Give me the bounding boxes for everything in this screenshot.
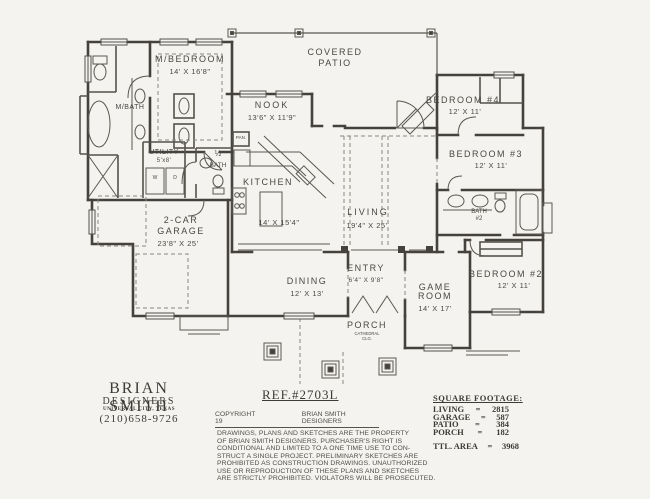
sqft-total-eq: =: [488, 441, 493, 451]
label-bedroom4: BEDROOM #4: [419, 96, 507, 105]
sqft-total-value: 3968: [502, 441, 519, 451]
label-bedroom3: BEDROOM #3: [442, 150, 530, 159]
label-m-bedroom: M/BEDROOM: [140, 55, 240, 64]
dims-entry: 6'4" X 9'8": [336, 277, 396, 284]
label-living: LIVING: [338, 208, 398, 217]
dims-kitchen: 14' X 15'4": [247, 218, 311, 227]
designer-phone: (210)658-9726: [83, 413, 195, 425]
label-washer: W: [149, 176, 161, 181]
sqft-label: PORCH: [433, 427, 464, 437]
dims-bedroom3: 12' X 11': [447, 161, 535, 170]
sqft-total-label: TTL. AREA: [433, 441, 478, 451]
label-game-room-2: ROOM: [405, 292, 465, 301]
label-m-bath: M/BATH: [104, 104, 156, 111]
floor-plan-sheet: M/BEDROOM 14' X 16'8" M/BATH UTILITY 5'x…: [0, 0, 650, 499]
label-bath2-2: #2: [462, 216, 496, 222]
sqft-eq: =: [478, 427, 483, 437]
label-bedroom2: BEDROOM #2: [462, 270, 550, 279]
sqft-value: 182: [496, 427, 509, 437]
label-nook: NOOK: [237, 101, 307, 110]
label-dryer: D: [169, 176, 181, 181]
copyright-owner: BRIAN SMITH DESIGNERS: [302, 411, 379, 425]
label-half-bath-fraction: ½: [208, 150, 228, 158]
copyright-line-6: USE OR REPRODUCTION OF THESE PLANS AND S…: [217, 468, 419, 475]
label-utility: UTILITY: [140, 149, 188, 156]
copyright-heading: COPYRIGHT 19 BRIAN SMITH DESIGNERS: [215, 411, 379, 428]
label-garage-1: 2-CAR: [145, 216, 217, 225]
dims-garage: 23'8" X 25': [142, 239, 214, 248]
copyright-line-5: PROHIBITED AS CONSTRUCTION DRAWINGS. UNA…: [217, 460, 427, 467]
label-garage-2: GARAGE: [145, 227, 217, 236]
copyright-line-4: STRUCT A SINGLE PROJECT. PRELIMINARY SKE…: [217, 453, 418, 460]
copyright-line-1: DRAWINGS, PLANS AND SKETCHES ARE THE PRO…: [217, 430, 409, 437]
label-entry: ENTRY: [336, 264, 396, 273]
dims-dining: 12' X 13': [270, 289, 344, 298]
dims-living: 19'4" X 25': [328, 221, 406, 230]
copyright-line-2: OF BRIAN SMITH DESIGNERS. PURCHASER'S RI…: [217, 438, 402, 445]
label-pantry: PAN.: [233, 136, 249, 141]
dims-bedroom4: 12' X 11': [421, 107, 509, 116]
dims-utility: 5'x8': [140, 158, 188, 164]
label-porch-ceiling: CATHEDRAL CLG.: [350, 332, 384, 341]
fixtures: [88, 29, 552, 378]
designer-city: UNIVERSAL CITY, TEXAS: [83, 407, 195, 412]
label-bath2-1: BATH: [462, 209, 496, 215]
copyright-line-3: CONDITIONAL AND LIMITED TO A ONE TIME US…: [217, 445, 410, 452]
designer-title: DESIGNERS: [83, 396, 195, 407]
label-covered-patio-2: PATIO: [295, 59, 375, 68]
dims-bedroom2: 12' X 11': [470, 281, 558, 290]
sqft-row-porch: PORCH = 182: [433, 427, 509, 437]
label-kitchen: KITCHEN: [238, 178, 298, 187]
label-covered-patio-1: COVERED: [295, 48, 375, 57]
copyright-line-7: ARE STRICTLY PROHIBITED. VIOLATORS WILL …: [217, 475, 435, 482]
square-footage-heading: SQUARE FOOTAGE:: [433, 393, 523, 403]
copyright-label: COPYRIGHT 19: [215, 411, 260, 425]
ref-number: REF.#2703L: [262, 387, 339, 403]
sqft-total-row: TTL. AREA = 3968: [433, 441, 519, 451]
dims-game-room: 14' X 17': [405, 304, 465, 313]
label-half-bath: BATH: [198, 163, 238, 170]
walls: [88, 42, 543, 348]
dims-nook: 13'6" X 11'9": [227, 113, 317, 122]
dims-m-bedroom: 14' X 16'8": [140, 67, 240, 76]
label-porch: PORCH: [338, 321, 396, 330]
label-dining: DINING: [270, 277, 344, 286]
